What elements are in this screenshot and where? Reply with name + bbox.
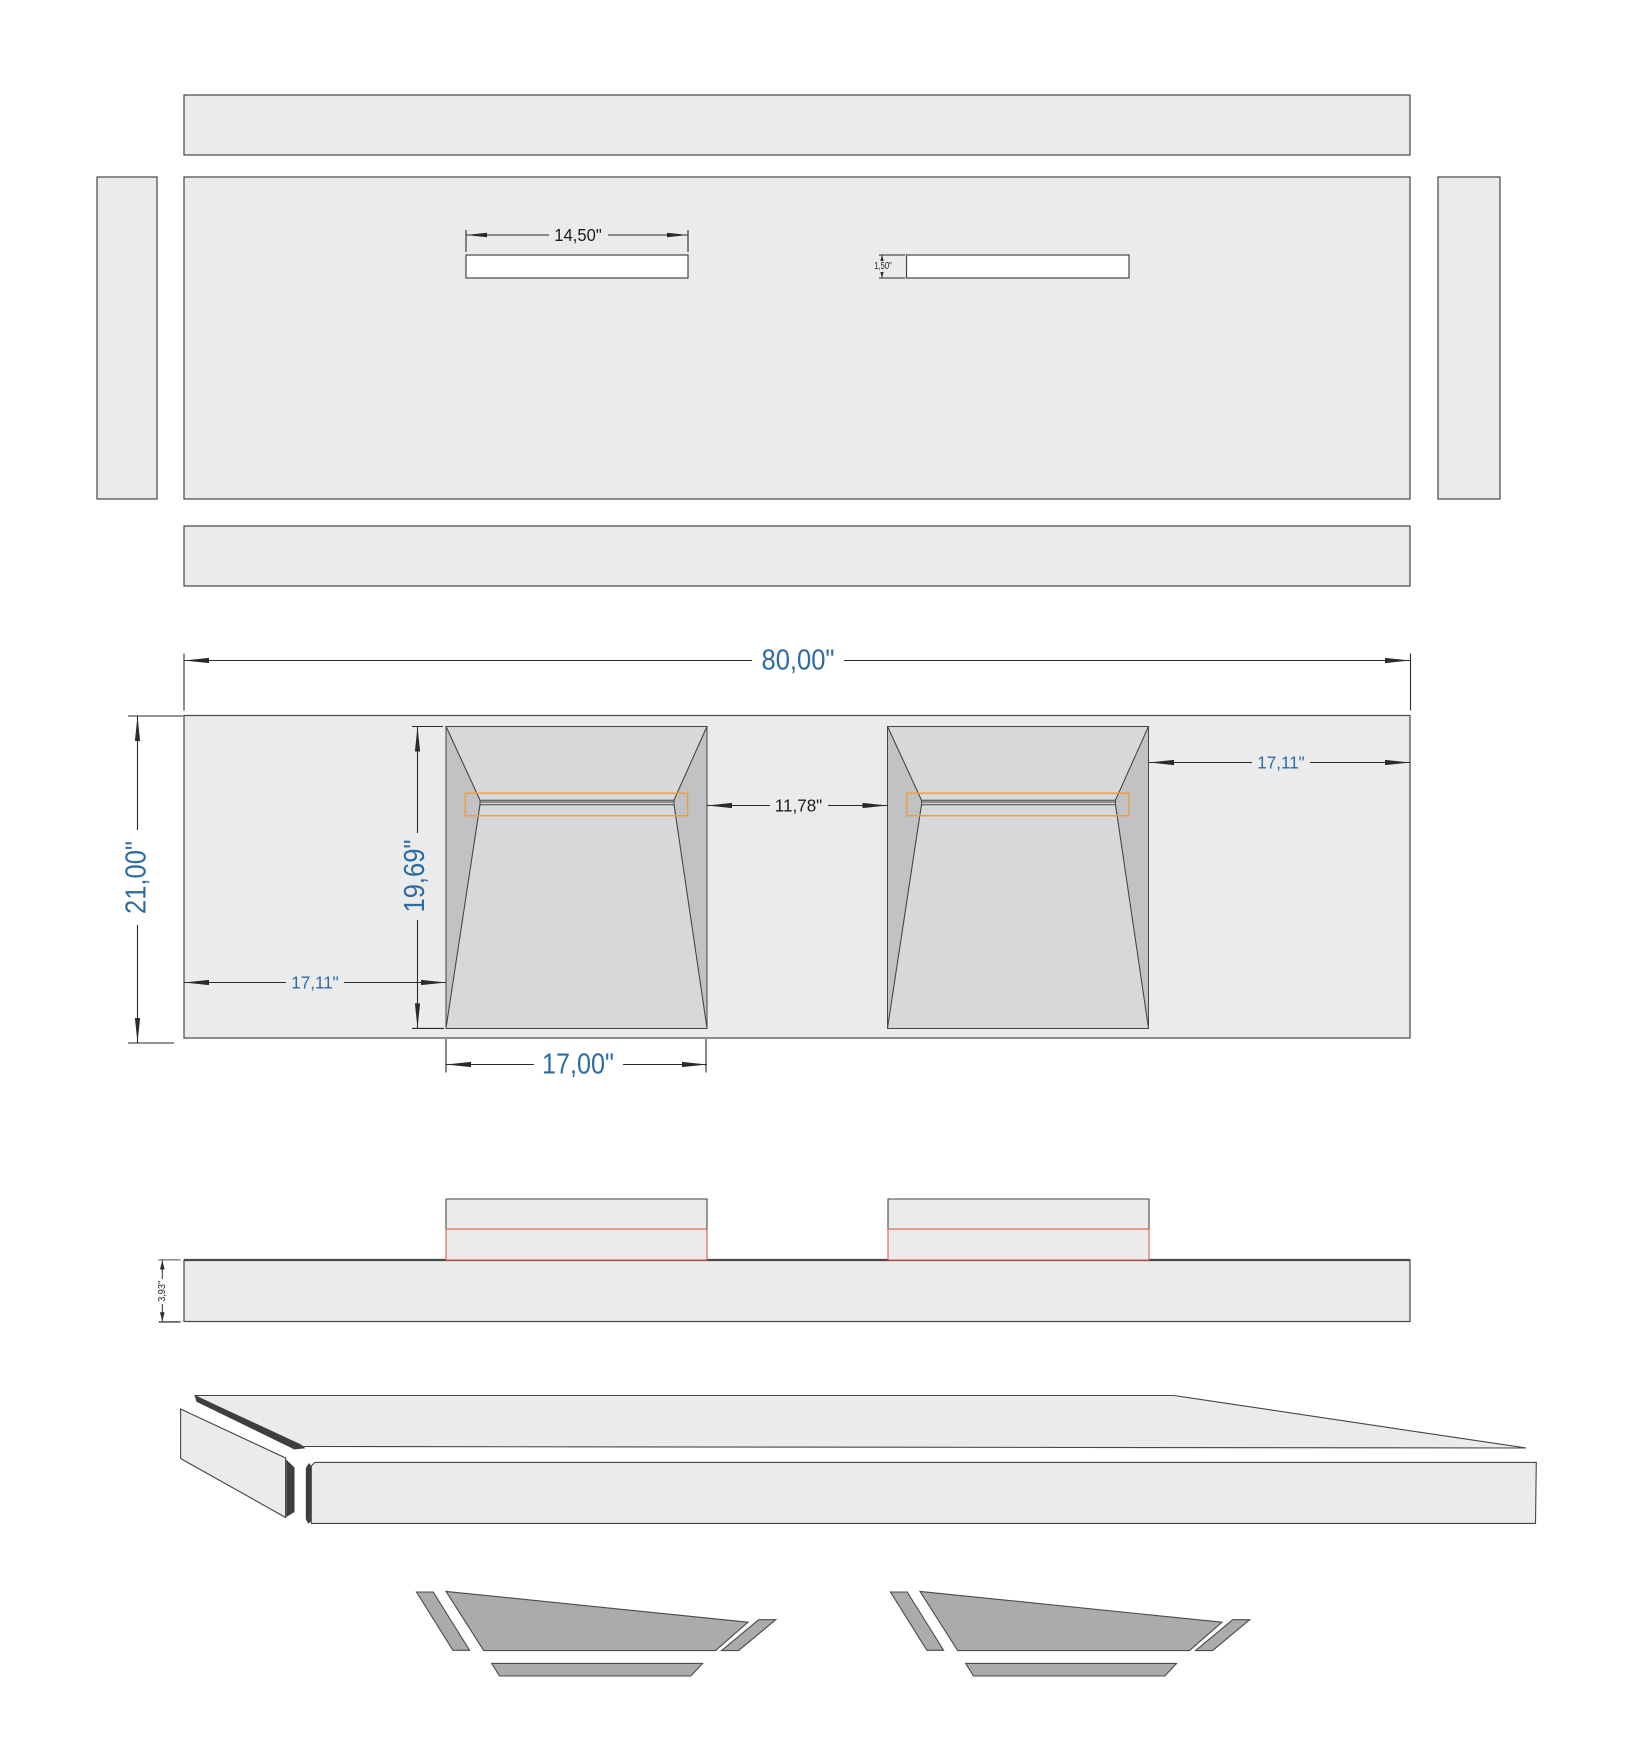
svg-text:17,00": 17,00" [542, 1049, 614, 1081]
svg-text:17,11": 17,11" [1257, 753, 1305, 773]
svg-text:1,50": 1,50" [874, 261, 892, 272]
svg-text:19,69": 19,69" [399, 840, 431, 913]
svg-text:21,00": 21,00" [121, 841, 153, 914]
svg-text:14,50": 14,50" [554, 225, 602, 245]
svg-text:3,93": 3,93" [157, 1280, 168, 1301]
svg-text:80,00": 80,00" [762, 645, 835, 677]
svg-text:11,78": 11,78" [775, 796, 823, 816]
svg-text:17,11": 17,11" [291, 973, 339, 993]
